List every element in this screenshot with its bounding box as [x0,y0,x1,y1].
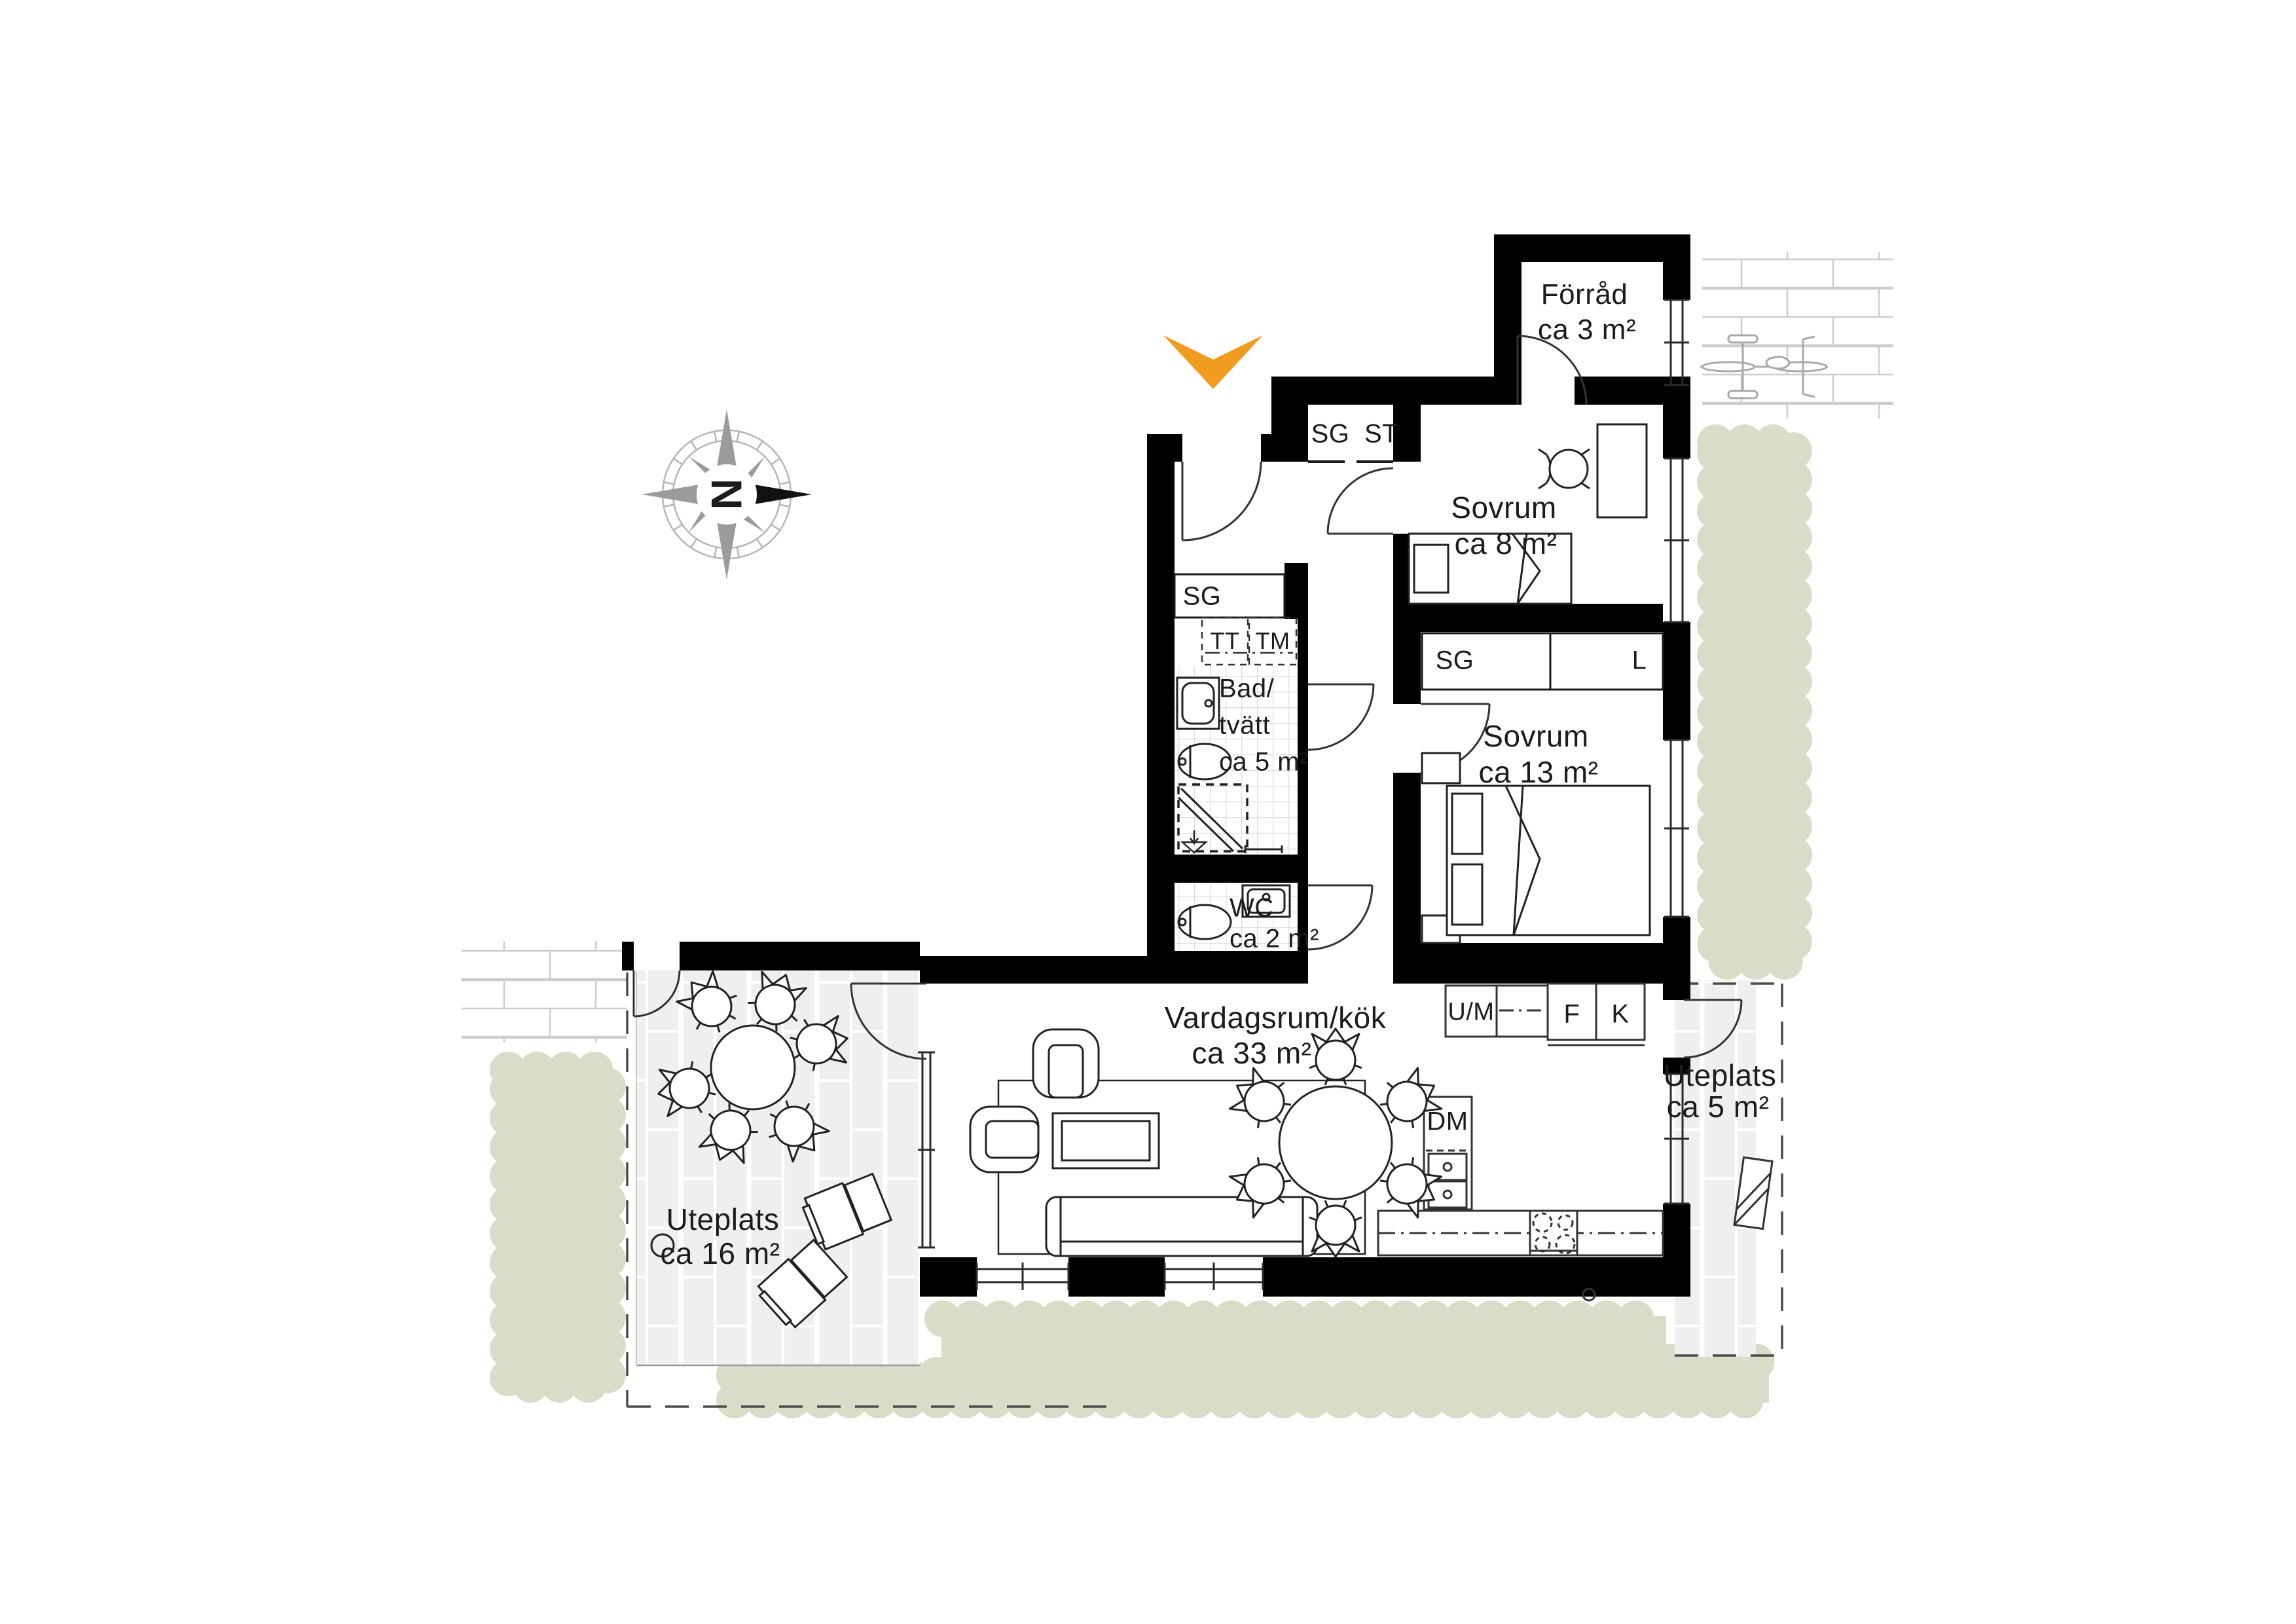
appliance-label-k: K [1611,1000,1629,1029]
room-label-vardagsrum-area: ca 33 m² [1192,1035,1312,1071]
appliance-label-um: U/M [1448,999,1494,1027]
terrace-label-small-area: ca 5 m² [1667,1089,1770,1124]
room-label-wc-area: ca 2 m² [1230,925,1319,954]
terrace-label-small-name: Uteplats [1664,1058,1777,1093]
floorplan-drawing [0,0,2296,1624]
room-label-forrad-area: ca 3 m² [1538,314,1636,346]
terrace-label-large-name: Uteplats [666,1202,780,1237]
compass-north-label: N [702,479,752,510]
room-label-vardagsrum-name: Vardagsrum/kök [1165,1000,1387,1035]
closet-label-sg-hall: SG [1183,582,1222,612]
terrace-label-large-area: ca 16 m² [661,1236,780,1271]
room-label-sovrum8-area: ca 8 m² [1455,526,1558,561]
room-label-sovrum8-name: Sovrum [1451,490,1556,525]
appliance-label-tm: TM [1256,627,1290,655]
room-label-bad-area: ca 5 m² [1219,748,1309,777]
appliance-label-dm: DM [1427,1107,1468,1137]
appliance-label-tt: TT [1211,627,1240,655]
closet-label-sg-bedroom: SG [1436,646,1474,676]
room-label-sovrum13-area: ca 13 m² [1479,754,1599,790]
room-label-bad-line2: tvätt [1219,711,1270,741]
closet-label-l: L [1632,646,1647,676]
closet-label-st: ST [1364,420,1398,449]
room-label-forrad-name: Förråd [1541,278,1628,311]
entrance-arrow-icon [1163,335,1263,389]
floorplan-page: { "plan": { "compass": { "north_label": … [0,0,2296,1624]
room-label-wc-name: WC [1230,894,1274,923]
closet-label-sg-top: SG [1311,420,1350,449]
appliance-label-f: F [1564,1000,1580,1029]
room-label-bad-line1: Bad/ [1219,674,1274,704]
room-label-sovrum13-name: Sovrum [1483,718,1588,754]
